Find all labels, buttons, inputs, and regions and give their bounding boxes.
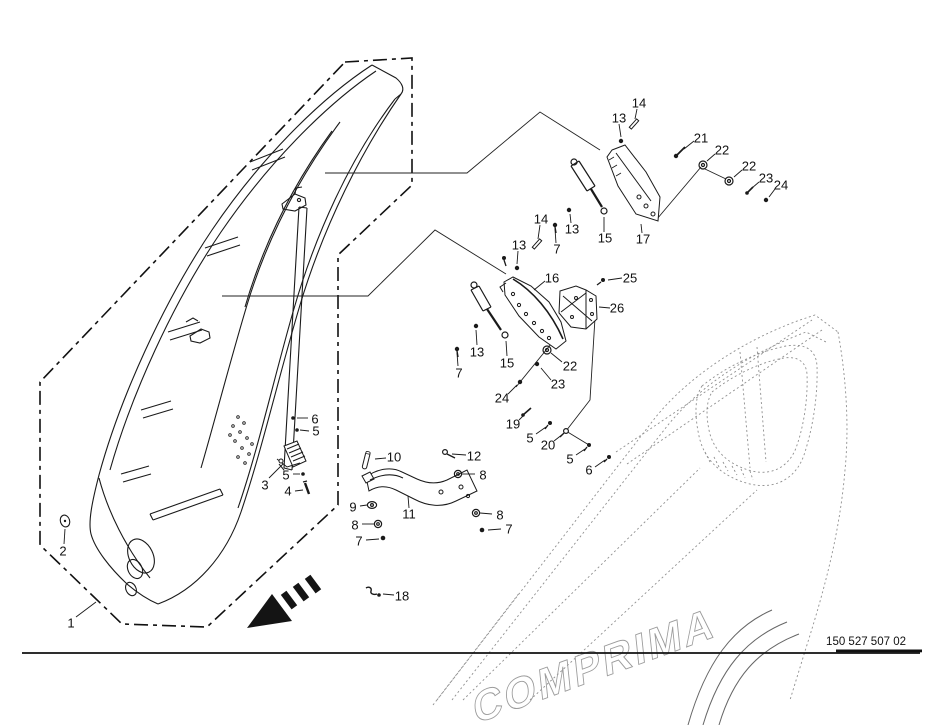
leader-line-21 xyxy=(684,141,694,149)
leader-line-1 xyxy=(76,602,96,617)
fastener-glyphs xyxy=(291,119,768,597)
callout-7: 7 xyxy=(505,522,512,537)
callout-6: 6 xyxy=(585,463,592,478)
callout-15: 15 xyxy=(500,356,514,371)
callout-7: 7 xyxy=(553,242,560,257)
callout-24: 24 xyxy=(495,391,509,406)
leader-line-7 xyxy=(488,529,501,530)
callout-1: 1 xyxy=(67,616,74,631)
callout-17: 17 xyxy=(636,232,650,247)
callout-4: 4 xyxy=(284,484,291,499)
callout-13: 13 xyxy=(512,238,526,253)
grommet-part xyxy=(59,514,71,528)
leader-line-13 xyxy=(619,124,621,137)
leader-line-6 xyxy=(595,460,605,467)
callout-24: 24 xyxy=(774,178,788,193)
leader-line-16 xyxy=(534,281,545,290)
parts-diagram-page: COMPRIMA 150 527 507 02 xyxy=(0,0,950,725)
leader-line-20 xyxy=(554,434,563,441)
callout-12: 12 xyxy=(467,449,481,464)
part-code-underline xyxy=(836,650,922,653)
leader-line-9 xyxy=(360,505,367,506)
callout-6: 6 xyxy=(311,412,318,427)
leader-line-13 xyxy=(476,330,477,345)
leader-line-8 xyxy=(480,513,492,514)
callout-18: 18 xyxy=(395,589,409,604)
callout-14: 14 xyxy=(534,212,548,227)
part-code: 150 527 507 02 xyxy=(826,636,906,648)
callout-15: 15 xyxy=(598,231,612,246)
callout-13: 13 xyxy=(612,111,626,126)
leader-line-18 xyxy=(383,594,394,595)
callout-3: 3 xyxy=(261,478,268,493)
callout-8: 8 xyxy=(496,508,503,523)
callout-13: 13 xyxy=(565,222,579,237)
comprima-brand-text: COMPRIMA xyxy=(471,598,718,725)
leader-line-5 xyxy=(300,430,309,431)
callout-2: 2 xyxy=(59,544,66,559)
callout-8: 8 xyxy=(479,468,486,483)
leader-line-14 xyxy=(635,109,637,119)
bracket-17 xyxy=(607,145,660,221)
bracket-26 xyxy=(559,286,597,329)
leader-line-3 xyxy=(269,464,283,478)
leader-line-4 xyxy=(295,490,303,491)
callout-22: 22 xyxy=(715,143,729,158)
callout-5: 5 xyxy=(526,431,533,446)
leader-line-26 xyxy=(599,307,610,308)
direction-arrow-icon xyxy=(247,575,321,628)
bracket-16 xyxy=(500,277,566,349)
callout-5: 5 xyxy=(566,452,573,467)
callout-14: 14 xyxy=(632,96,646,111)
reference-lines xyxy=(222,112,726,445)
leader-line-23 xyxy=(541,368,551,380)
callout-21: 21 xyxy=(694,131,708,146)
callout-16: 16 xyxy=(545,271,559,286)
callout-8: 8 xyxy=(351,518,358,533)
callout-13: 13 xyxy=(470,345,484,360)
callout-19: 19 xyxy=(506,417,520,432)
panel-perforation-pattern xyxy=(229,416,254,465)
callout-23: 23 xyxy=(551,377,565,392)
leader-line-12 xyxy=(452,454,466,455)
leader-line-10 xyxy=(375,458,386,459)
callout-23: 23 xyxy=(759,171,773,186)
callout-7: 7 xyxy=(355,534,362,549)
leader-line-2 xyxy=(64,529,65,544)
leader-line-25 xyxy=(608,278,622,280)
callout-25: 25 xyxy=(623,271,637,286)
callout-11: 11 xyxy=(402,507,416,522)
leader-line-5 xyxy=(536,427,546,434)
callout-22: 22 xyxy=(742,159,756,174)
callout-26: 26 xyxy=(610,301,624,316)
callouts-layer: 1234556789101112887181371522232419520561… xyxy=(59,96,788,631)
leader-line-5 xyxy=(576,449,585,455)
leader-line-15 xyxy=(506,341,507,356)
callout-10: 10 xyxy=(387,450,401,465)
callout-9: 9 xyxy=(349,500,356,515)
leader-line-13 xyxy=(517,251,518,264)
leader-line-22 xyxy=(551,353,562,362)
callout-5: 5 xyxy=(282,468,289,483)
leader-line-24 xyxy=(508,385,517,394)
leader-line-7 xyxy=(366,539,379,540)
callout-7: 7 xyxy=(455,366,462,381)
callout-22: 22 xyxy=(563,359,577,374)
callout-20: 20 xyxy=(541,438,555,453)
gas-strut-upper xyxy=(571,159,607,214)
leader-line-14 xyxy=(538,225,540,239)
